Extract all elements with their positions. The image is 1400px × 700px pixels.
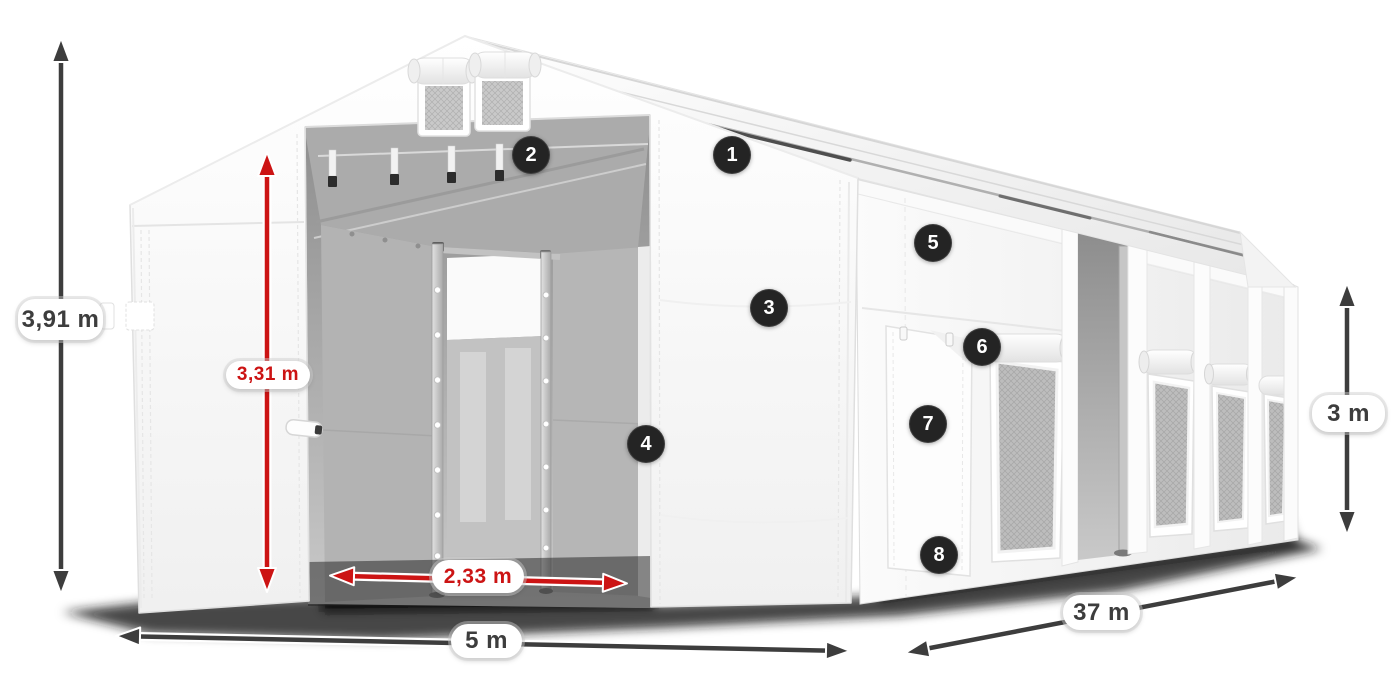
wall-patch: [126, 302, 154, 330]
callout-badge-4: 4: [627, 425, 665, 463]
callout-badge-5: 5: [914, 224, 952, 262]
callout-badge-3: 3: [750, 289, 788, 327]
callout-badge-2: 2: [512, 136, 550, 174]
dimension-label-door-width: 2,33 m: [432, 560, 524, 593]
dimension-label-side-length: 37 m: [1063, 595, 1140, 630]
flap-hook: [946, 333, 953, 346]
door-handle: [285, 419, 322, 438]
side-entrance-gap: [1078, 232, 1132, 560]
flap-hook: [900, 327, 907, 340]
dimension-label-door-height: 3,31 m: [226, 361, 310, 389]
callout-badge-7: 7: [909, 405, 947, 443]
tent-dimension-diagram: 3,91 m 3,31 m 2,33 m 5 m 37 m 3 m 1 2 3 …: [0, 0, 1400, 700]
dimension-label-front-width: 5 m: [451, 624, 522, 658]
gable-vents: [408, 52, 541, 136]
corner-post: [1119, 246, 1128, 552]
tent-illustration: [0, 0, 1400, 700]
vent-mesh: [482, 81, 523, 125]
vent-mesh: [425, 86, 463, 130]
callout-badge-8: 8: [920, 536, 958, 574]
side-window-1: [982, 334, 1072, 562]
callout-badge-1: 1: [713, 136, 751, 174]
dimension-label-side-height: 3 m: [1312, 395, 1385, 432]
through-view: [447, 254, 543, 340]
callout-badge-6: 6: [963, 328, 1001, 366]
tent-interior: [304, 114, 651, 608]
dimension-label-total-height: 3,91 m: [18, 299, 103, 340]
interior-left-wall: [321, 225, 437, 602]
